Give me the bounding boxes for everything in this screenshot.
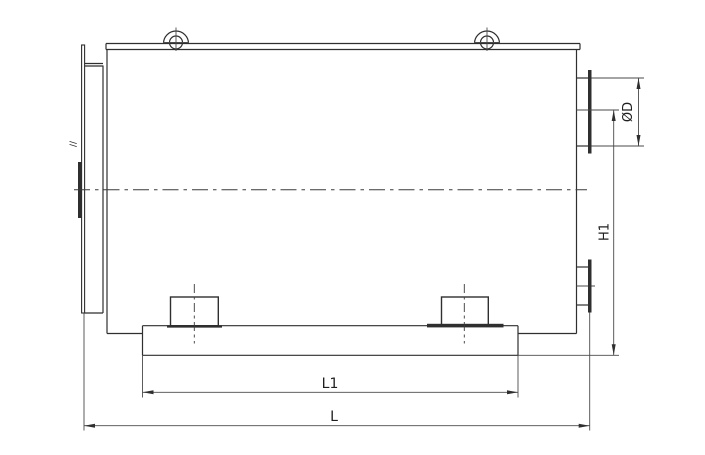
arrowhead-down [612, 344, 616, 355]
lifting-eye-right [474, 28, 500, 52]
foot-block [442, 297, 489, 326]
mounting-foot-left [167, 284, 222, 344]
mounting-foot-right [427, 284, 504, 344]
technical-drawing: // [0, 0, 705, 455]
nozzle-flange [588, 70, 592, 154]
dimension-base-length: L1 [143, 355, 519, 397]
height-label: H1 [598, 223, 613, 241]
foot-pad [427, 324, 504, 328]
plate-mark-label: // [69, 140, 79, 147]
arrowhead-up [612, 110, 616, 121]
arrowhead-right [579, 424, 590, 428]
overall-length-label: L [330, 409, 338, 425]
arrowhead-left [84, 424, 95, 428]
dimension-mount-height: H1 [518, 110, 619, 355]
nozzle-flange [588, 260, 592, 313]
dimension-nozzle-diameter: ØD [592, 78, 645, 146]
tank-body [103, 44, 580, 334]
arrowhead-right [507, 390, 518, 394]
lifting-eye-left [163, 28, 189, 52]
base-length-label: L1 [322, 376, 339, 392]
diameter-label: ØD [621, 102, 636, 122]
left-flange-plate: // [69, 45, 103, 313]
dimension-overall-length: L [84, 313, 590, 431]
arrowhead-left [143, 390, 154, 394]
flange-plate [82, 45, 85, 313]
drawing-canvas: // [0, 0, 705, 455]
arrowhead-up [637, 78, 641, 89]
upper-nozzle [577, 70, 592, 154]
arrowhead-down [637, 135, 641, 146]
lower-nozzle [577, 260, 596, 313]
base-skid [143, 326, 519, 356]
